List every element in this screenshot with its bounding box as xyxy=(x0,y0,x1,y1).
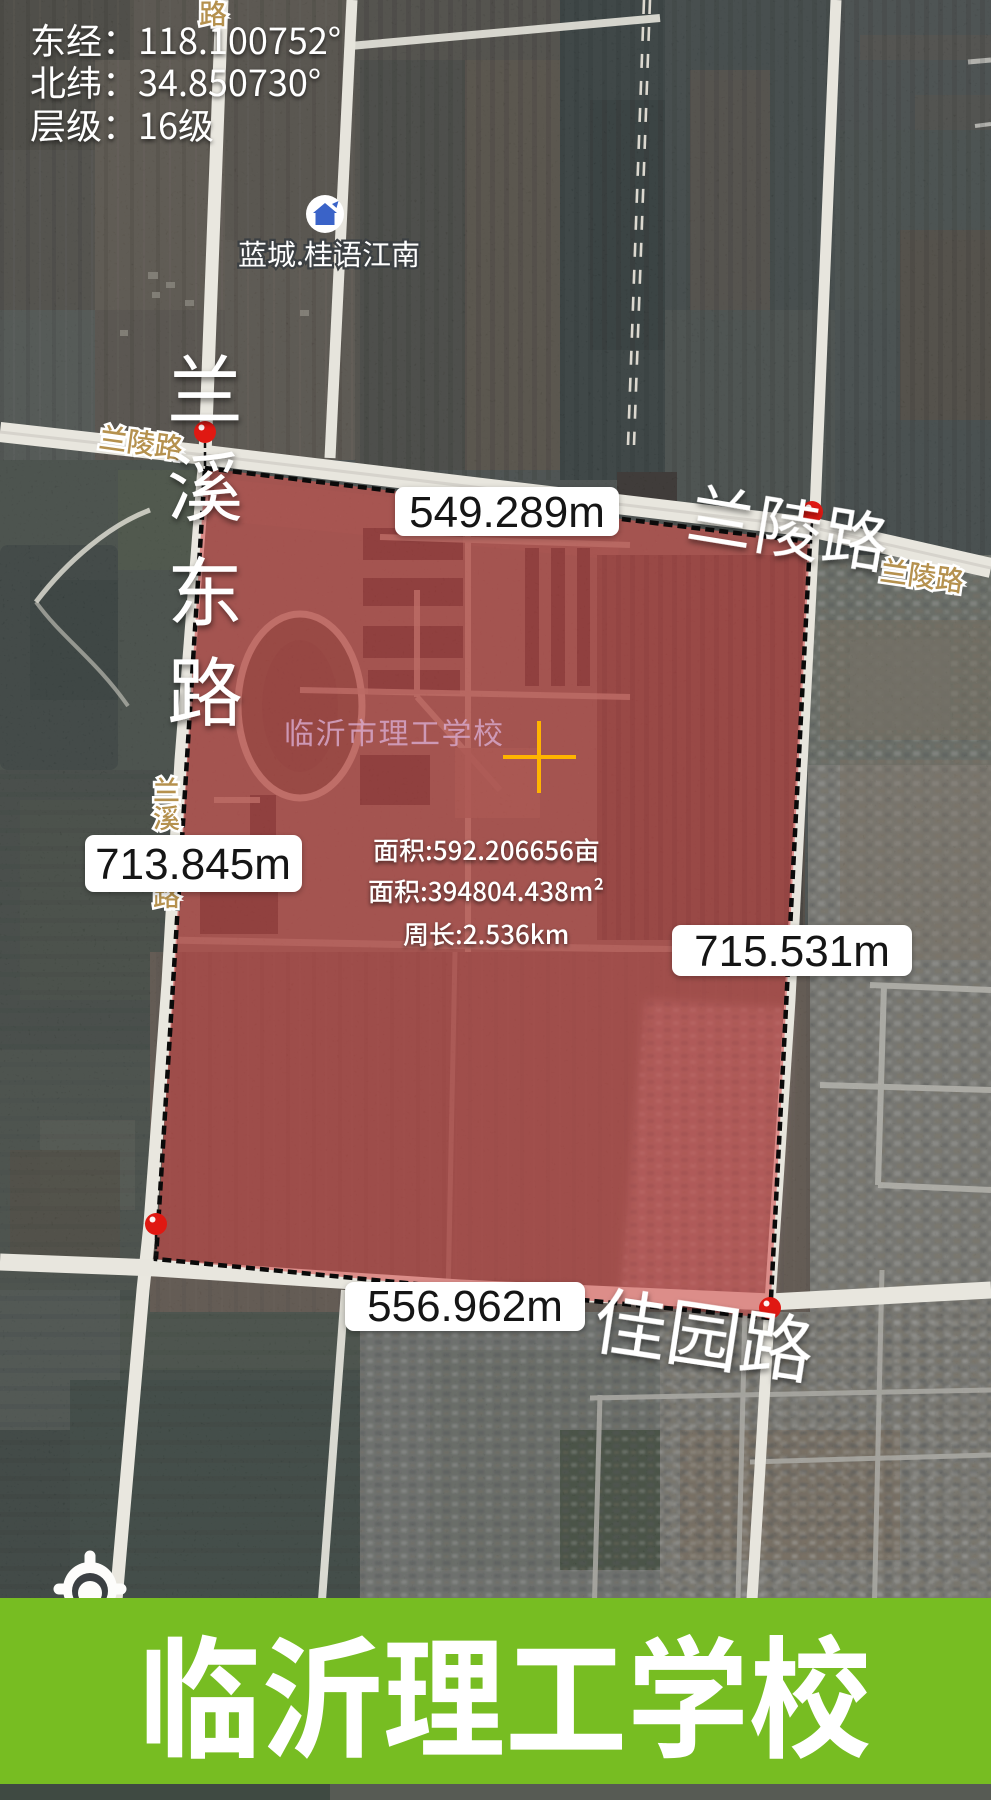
svg-text:556.962m: 556.962m xyxy=(367,1282,563,1331)
svg-text:549.289m: 549.289m xyxy=(409,488,605,537)
svg-text:715.531m: 715.531m xyxy=(694,927,890,976)
svg-text:713.845m: 713.845m xyxy=(95,840,291,889)
